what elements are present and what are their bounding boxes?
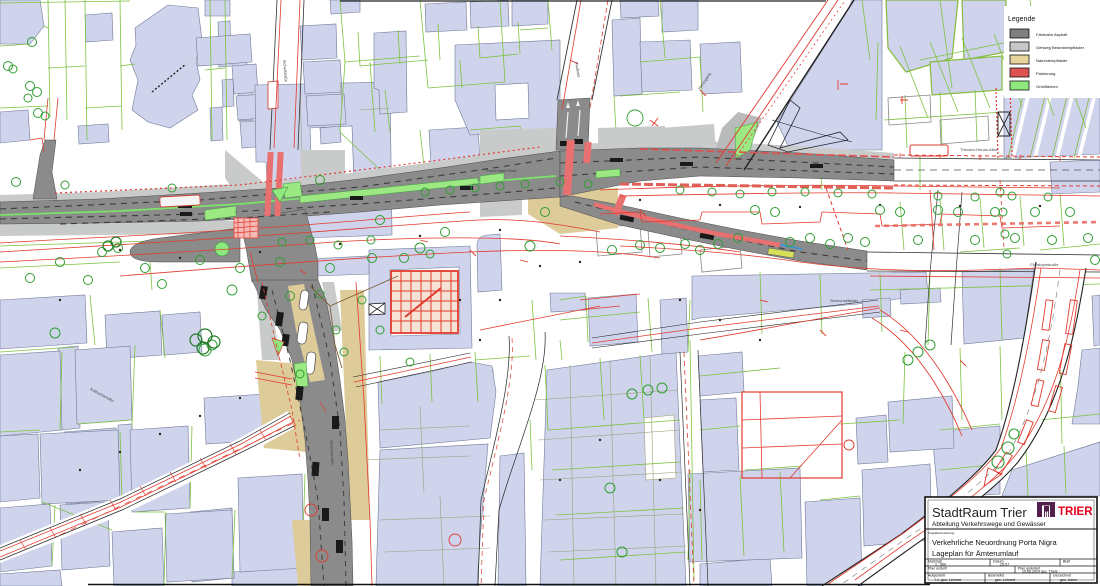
svg-text:StadtRaum Trier: StadtRaum Trier	[932, 505, 1027, 520]
svg-text:TRIER: TRIER	[1058, 506, 1093, 518]
svg-text:Theodor-Heuss-Allee: Theodor-Heuss-Allee	[960, 147, 999, 152]
svg-text:Abteilung Verkehrswege und Gew: Abteilung Verkehrswege und Gewässer	[932, 521, 1047, 528]
svg-text:Fahrbahn Asphalt: Fahrbahn Asphalt	[1036, 32, 1068, 37]
svg-text:gez. Usser: gez. Usser	[1060, 578, 1078, 582]
svg-text:gez. Lehnert: gez. Lehnert	[995, 578, 1015, 582]
svg-text:Aufgestellt: Aufgestellt	[928, 574, 945, 578]
svg-text:Lageplan für Ämterumlauf: Lageplan für Ämterumlauf	[932, 549, 1019, 558]
svg-text:25-07: 25-07	[1000, 563, 1009, 567]
svg-text:Christophstraße: Christophstraße	[1030, 262, 1059, 267]
svg-text:Natursteinpflaster: Natursteinpflaster	[1036, 58, 1068, 63]
svg-text:Legende: Legende	[1008, 16, 1035, 23]
svg-text:Blatt: Blatt	[1063, 560, 1070, 564]
svg-text:Gezeichnet: Gezeichnet	[1053, 574, 1071, 578]
svg-text:Simeonstiftplatz: Simeonstiftplatz	[830, 298, 858, 303]
svg-text:Bearbeitet: Bearbeitet	[988, 574, 1004, 578]
svg-text:Plan erstellt: Plan erstellt	[928, 567, 947, 571]
svg-text:Gehweg Betonsteinpflaster: Gehweg Betonsteinpflaster	[1036, 45, 1085, 50]
svg-text:Porta-Nigra-Platz: Porta-Nigra-Platz	[486, 168, 517, 173]
svg-text:Projektbezeichnung: Projektbezeichnung	[928, 531, 955, 535]
svg-text:Verkehrliche Neuordnung Porta: Verkehrliche Neuordnung Porta Nigra	[932, 538, 1057, 547]
svg-text:Grünflächen: Grünflächen	[1036, 84, 1058, 89]
svg-text:Parkierung: Parkierung	[1036, 71, 1055, 76]
svg-text:I.V. gez. Lehnert: I.V. gez. Lehnert	[935, 578, 961, 582]
